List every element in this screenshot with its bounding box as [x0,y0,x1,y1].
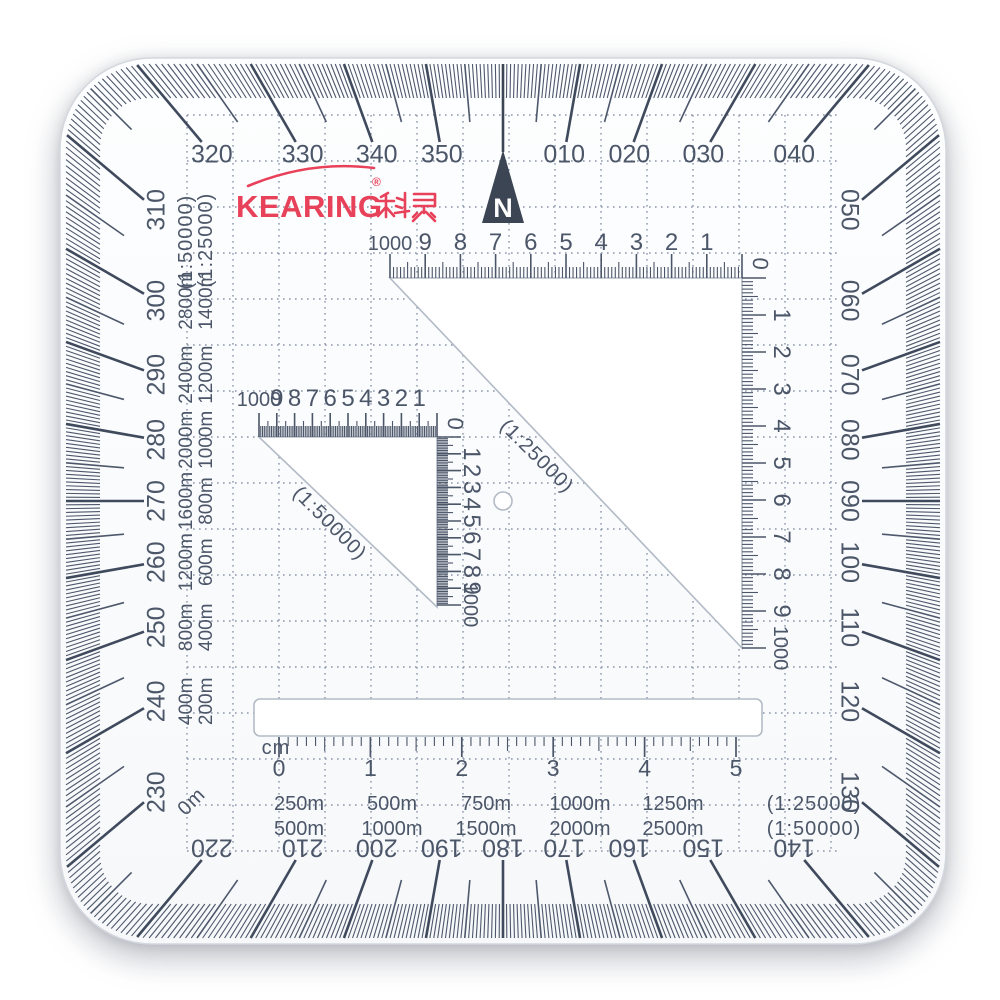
meter-label-25000: 600m [196,538,217,586]
romer-number: 5 [768,456,795,469]
romer-number: 7 [768,530,795,543]
degree-tick [66,508,100,509]
meter-label-25000: 400m [196,604,217,652]
romer-number: 8 [454,229,467,256]
degree-label-250: 250 [143,606,171,648]
degree-label-120: 120 [836,680,864,722]
compass-letter: N [493,193,513,223]
romer-number: 6 [768,493,795,506]
degree-tick [510,64,511,98]
romer-number: 7 [489,229,502,256]
romer-number: 7 [306,385,319,412]
degree-label-100: 100 [836,541,864,583]
romer-number: 9 [768,604,795,617]
romer-number: 2 [458,464,485,477]
romer-number: 7 [458,548,485,561]
degree-label-340: 340 [356,141,398,169]
degree-label-110: 110 [836,607,864,647]
romer-number: 9 [419,229,432,256]
romer-number: 1 [768,308,795,321]
degree-tick [495,64,496,98]
degree-label-280: 280 [143,419,171,461]
degree-label-300: 300 [143,280,171,322]
meter-label-25000: 800m [196,477,217,525]
degree-label-330: 330 [282,141,324,169]
cm-number: 4 [638,755,651,781]
meter-label-50000: 1600m [176,472,197,530]
degree-label-350: 350 [421,141,463,169]
romer-number: 1000 [459,583,481,628]
romer-number: 1000 [368,233,413,255]
romer-number: 4 [595,229,608,256]
table-value-50000: 1000m [361,818,422,840]
romer-number: 1 [458,447,485,460]
table-value-50000: 2500m [642,818,703,840]
degree-label-230: 230 [142,771,170,813]
romer-number: 2 [395,385,408,412]
meter-label-25000: 1000m [196,411,217,469]
romer-number: 8 [768,567,795,580]
degree-label-050: 050 [836,189,864,231]
brand-name: KEARING [236,189,382,224]
romer-number: 5 [458,514,485,527]
romer-number: 6 [458,531,485,544]
table-caption-50000: (1:50000) [767,818,862,840]
degree-tick [495,904,496,938]
degree-label-010: 010 [543,141,585,169]
degree-label-030: 030 [682,141,724,169]
degree-label-040: 040 [773,141,815,169]
degree-label-220: 220 [191,834,233,862]
meter-label-50000: 2800m [176,272,197,330]
cm-number: 2 [455,755,468,781]
degree-tick [906,493,940,494]
protractor-scene: 0100200300400500600700800901001101201301… [0,0,1000,1000]
meter-label-25000: 200m [196,678,217,726]
cm-number: 5 [730,755,743,781]
degree-label-020: 020 [608,141,650,169]
degree-label-080: 080 [836,419,864,461]
romer-number: 3 [630,229,643,256]
degree-label-270: 270 [143,480,171,522]
degree-label-060: 060 [836,280,864,322]
meter-label-50000: 400m [176,678,197,726]
romer-number: 4 [458,498,485,511]
degree-label-320: 320 [191,141,233,169]
table-value-25000: 1250m [642,793,703,815]
degree-tick [510,904,511,938]
degree-tick [66,493,100,494]
degree-tick [906,508,940,509]
table-caption-25000: (1:25000) [767,793,862,815]
romer-number: 3 [768,382,795,395]
cm-number: 0 [273,755,286,781]
romer-number: 5 [559,229,572,256]
cm-number: 3 [547,755,560,781]
degree-label-290: 290 [143,354,171,396]
romer-number: 5 [341,385,354,412]
romer-zero-25000: 0 [747,256,773,270]
meter-label-50000: 1200m [176,533,197,591]
romer-number: 2 [768,345,795,358]
table-value-50000: 2000m [549,818,610,840]
cm-number: 1 [364,755,377,781]
center-hole [494,492,512,510]
table-value-50000: 1500m [455,818,516,840]
romer-zero-50000: 0 [442,416,468,430]
romer-number: 1 [413,385,426,412]
degree-label-090: 090 [836,480,864,522]
table-value-50000: 500m [274,818,324,840]
meter-label-25000: 1400m [196,272,217,330]
degree-label-070: 070 [836,354,864,396]
romer-number: 2 [665,229,678,256]
table-value-25000: 750m [461,793,511,815]
slot-cutout [254,699,762,736]
romer-number: 4 [359,385,372,412]
table-value-25000: 500m [367,793,417,815]
table-value-25000: 250m [274,793,324,815]
meter-label-25000: 1200m [196,346,217,404]
romer-number: 1 [700,229,713,256]
romer-number: 9 [270,385,283,412]
romer-number: 6 [524,229,537,256]
protractor-photo: 0100200300400500600700800901001101201301… [0,0,1000,1000]
degree-label-240: 240 [143,680,171,722]
degree-label-310: 310 [143,189,171,231]
romer-number: 3 [377,385,390,412]
brand-registered-icon: ® [372,175,381,189]
romer-number: 8 [288,385,301,412]
romer-number: 1000 [769,626,791,671]
meter-label-50000: 800m [176,604,197,652]
meter-label-50000: 2400m [176,346,197,404]
romer-number: 6 [324,385,337,412]
romer-number: 3 [458,481,485,494]
meter-label-50000: 2000m [176,411,197,469]
romer-number: 4 [768,419,795,432]
degree-label-260: 260 [143,541,171,583]
romer-number: 8 [458,565,485,578]
table-value-25000: 1000m [549,793,610,815]
